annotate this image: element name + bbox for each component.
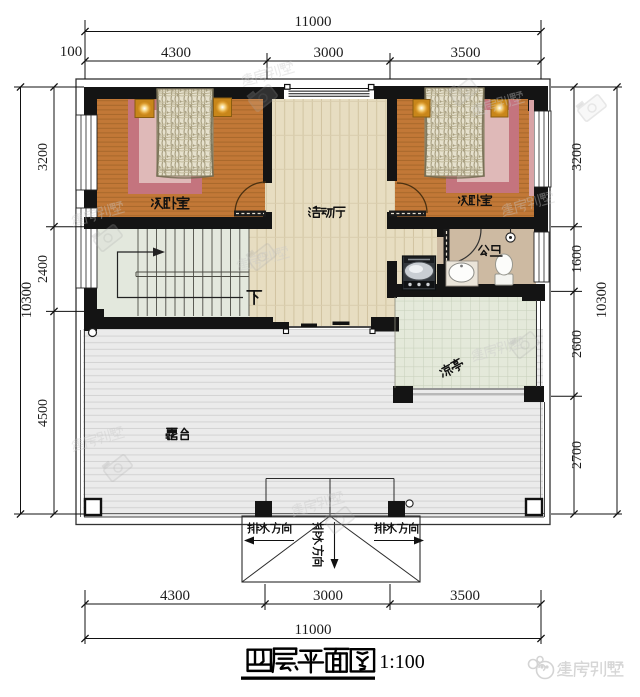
svg-text:10300: 10300 — [594, 282, 610, 318]
svg-text:2600: 2600 — [570, 330, 585, 358]
svg-text:3500: 3500 — [451, 45, 481, 61]
svg-text:3000: 3000 — [313, 588, 343, 604]
svg-text:3000: 3000 — [314, 45, 344, 61]
svg-text:2700: 2700 — [570, 441, 585, 469]
svg-text:10300: 10300 — [19, 282, 35, 318]
svg-text:2400: 2400 — [36, 255, 51, 283]
svg-text:11000: 11000 — [295, 14, 332, 30]
svg-text:4300: 4300 — [160, 588, 190, 604]
svg-text:3200: 3200 — [36, 143, 51, 171]
svg-text:3500: 3500 — [450, 588, 480, 604]
svg-text:4300: 4300 — [161, 45, 191, 61]
svg-text:1600: 1600 — [570, 245, 585, 273]
svg-text:11000: 11000 — [295, 622, 332, 638]
svg-text:1:100: 1:100 — [379, 651, 425, 673]
svg-text:4500: 4500 — [36, 399, 51, 427]
svg-text:100: 100 — [60, 44, 83, 60]
svg-text:3200: 3200 — [570, 143, 585, 171]
